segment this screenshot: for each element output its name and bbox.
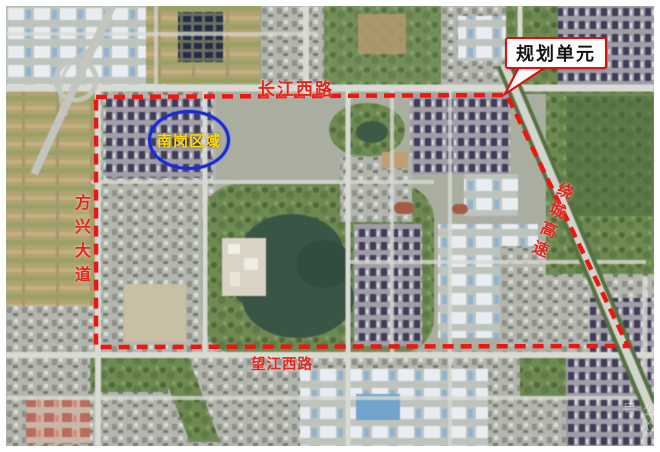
planning-map-figure: 规划单元 南岗区域 长江西路 望江西路 方兴大道 绕城高速 公众号: [0, 0, 660, 452]
road-label-changjiang-west: 长江西路: [258, 75, 334, 100]
road-label-wangjiang-west: 望江西路: [251, 353, 313, 374]
zone-label: 南岗区域: [157, 130, 221, 151]
planning-unit-callout: 规划单元: [505, 37, 607, 69]
watermark: 公众号: [618, 402, 654, 446]
satellite-map: 规划单元 南岗区域 长江西路 望江西路 方兴大道 绕城高速 公众号: [6, 6, 654, 446]
road-label-fangxing-avenue: 方兴大道: [68, 194, 92, 290]
zone-highlight-oval: 南岗区域: [148, 110, 230, 170]
